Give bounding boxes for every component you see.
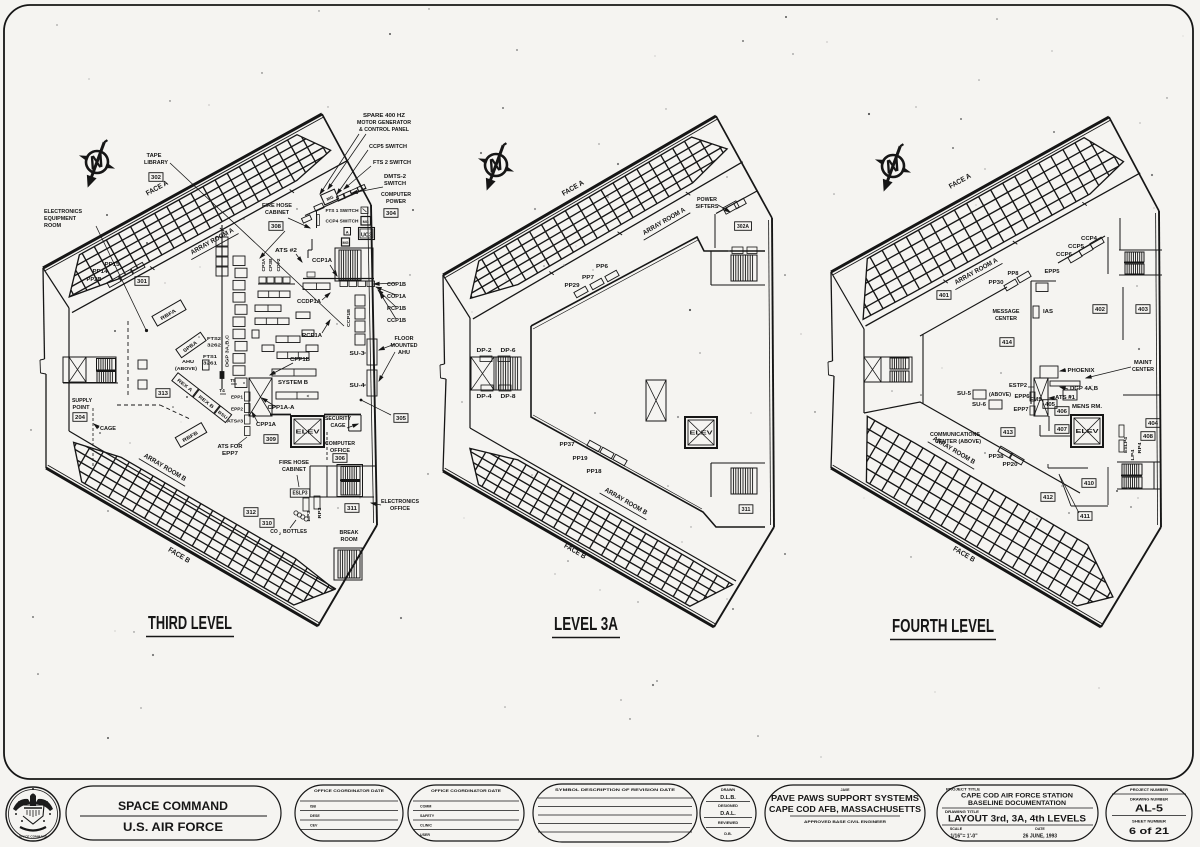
svg-text:311: 311 [742, 507, 751, 513]
svg-text:PROJECT NUMBER: PROJECT NUMBER [1130, 788, 1168, 792]
svg-text:SCALE: SCALE [950, 827, 963, 831]
svg-text:310: 310 [262, 521, 272, 527]
svg-text:MAINT: MAINT [1134, 360, 1153, 366]
svg-text:1/16"= 1'-0": 1/16"= 1'-0" [950, 834, 978, 840]
svg-text:SUPPLY: SUPPLY [72, 398, 93, 404]
svg-text:BASELINE DOCUMENTATION: BASELINE DOCUMENTATION [968, 800, 1066, 807]
svg-text:ROOM: ROOM [341, 537, 358, 543]
svg-text:PP38: PP38 [989, 454, 1004, 460]
svg-text:FLOOR: FLOOR [395, 336, 414, 342]
svg-text:DRAWING NUMBER: DRAWING NUMBER [1130, 798, 1168, 802]
svg-text:ELEV: ELEV [296, 430, 321, 436]
svg-text:DRAWN: DRAWN [721, 788, 736, 792]
svg-text:COP1A: COP1A [387, 294, 406, 300]
svg-text:SPACE COMMAND: SPACE COMMAND [19, 835, 47, 839]
svg-text:SHEET NUMBER: SHEET NUMBER [1132, 820, 1166, 824]
svg-text:PP7: PP7 [582, 275, 594, 281]
svg-text:DP-6: DP-6 [501, 348, 516, 354]
svg-text:COMPUTER: COMPUTER [325, 441, 355, 447]
svg-text:407: 407 [1057, 427, 1067, 433]
svg-text:402: 402 [1095, 307, 1105, 313]
svg-text:REVIEWED: REVIEWED [718, 821, 739, 825]
svg-text:CP3B: CP3B [268, 259, 273, 272]
svg-text:COMPUTER: COMPUTER [381, 192, 411, 198]
svg-text:D.B.: D.B. [724, 832, 732, 836]
svg-text:FTS 2 SWITCH: FTS 2 SWITCH [373, 160, 411, 166]
svg-text:FTS1: FTS1 [203, 354, 217, 360]
svg-text:CPP1A-A: CPP1A-A [268, 405, 295, 411]
svg-text:CENTER: CENTER [1132, 367, 1154, 373]
svg-text:CPP1A: CPP1A [256, 422, 276, 428]
svg-text:LIBRARY: LIBRARY [144, 160, 169, 166]
svg-text:CENTER: CENTER [995, 316, 1017, 322]
svg-text:<: < [307, 394, 310, 399]
svg-text:JA0E: JA0E [841, 788, 851, 792]
svg-text:311: 311 [347, 506, 357, 512]
svg-text:EPP2: EPP2 [231, 407, 243, 413]
svg-text:LP4: LP4 [1130, 449, 1135, 461]
svg-text:LEVEL 3A: LEVEL 3A [554, 614, 618, 634]
svg-text:PP14: PP14 [93, 269, 108, 275]
svg-text:306: 306 [335, 456, 345, 462]
svg-text:SU-3: SU-3 [350, 351, 365, 357]
svg-text:MG: MG [363, 220, 369, 224]
svg-text:204: 204 [75, 415, 85, 421]
svg-text:PHOENIX: PHOENIX [1068, 368, 1096, 374]
svg-text:ATS FOR: ATS FOR [218, 444, 243, 450]
svg-text:PP29: PP29 [565, 283, 580, 289]
svg-text:ELEV: ELEV [1076, 429, 1100, 435]
svg-text:SU-4: SU-4 [350, 383, 365, 389]
svg-text:MESSAGE: MESSAGE [993, 309, 1021, 315]
svg-text:401: 401 [939, 293, 949, 299]
svg-text:312: 312 [246, 510, 256, 516]
svg-text:FOURTH LEVEL: FOURTH LEVEL [892, 616, 994, 636]
svg-text:OFFICE: OFFICE [390, 506, 411, 512]
svg-text:CP3A: CP3A [261, 258, 266, 272]
svg-text:PP6: PP6 [596, 264, 608, 270]
svg-text:309: 309 [266, 437, 276, 443]
svg-text:FIRE HOSE: FIRE HOSE [262, 203, 293, 209]
svg-text:SYSTEM B: SYSTEM B [278, 380, 308, 386]
svg-text:T4: T4 [219, 388, 225, 394]
svg-text:POWER: POWER [386, 199, 406, 205]
svg-text:SIFTERS: SIFTERS [696, 204, 720, 210]
svg-text:DESE: DESE [310, 814, 320, 818]
svg-text:PROJECT TITLE: PROJECT TITLE [946, 788, 981, 792]
svg-text:313: 313 [158, 391, 168, 397]
svg-text:DGP 3A,B,C: DGP 3A,B,C [225, 334, 231, 367]
svg-text:SYMBOL DESCRIPTION OF REVI: SYMBOL DESCRIPTION OF REVISION DATE [555, 788, 676, 792]
svg-text:410: 410 [1084, 481, 1094, 487]
svg-text:26 JUNE, 1993: 26 JUNE, 1993 [1023, 834, 1057, 840]
svg-text:DP-8: DP-8 [501, 394, 516, 400]
svg-text:SU-5: SU-5 [957, 391, 971, 397]
svg-text:CABINET: CABINET [282, 467, 306, 473]
svg-text:OFFICE: OFFICE [330, 448, 351, 454]
svg-text:CEV: CEV [310, 824, 318, 828]
svg-text:CPP1B: CPP1B [290, 357, 310, 363]
svg-text:CAGE: CAGE [331, 423, 347, 429]
svg-text:PP15: PP15 [105, 262, 120, 268]
svg-text:304: 304 [386, 211, 396, 217]
svg-text:EPP7: EPP7 [222, 451, 238, 457]
svg-text:FTS 1 SWITCH: FTS 1 SWITCH [326, 208, 360, 213]
svg-text:EPP1: EPP1 [231, 395, 243, 401]
svg-text:COP1B: COP1B [387, 282, 406, 288]
svg-text:T5: T5 [230, 378, 236, 384]
svg-text:CCP4 SWITCH: CCP4 SWITCH [326, 219, 360, 224]
svg-text:PP20: PP20 [1003, 462, 1018, 468]
svg-text:(ABOVE): (ABOVE) [989, 392, 1011, 398]
svg-text:OFFICE COORDINATOR DATE: OFFICE COORDINATOR DATE [314, 789, 385, 793]
svg-text:A: A [346, 230, 349, 235]
svg-text:CAPE COD AIR FORCE STATION: CAPE COD AIR FORCE STATION [961, 793, 1073, 800]
svg-text:PP30: PP30 [989, 280, 1004, 286]
svg-text:FTS2: FTS2 [207, 336, 221, 342]
svg-text:TAPE: TAPE [147, 153, 163, 159]
svg-text:MG: MG [342, 241, 348, 245]
svg-text:ESTP2: ESTP2 [1009, 383, 1027, 389]
svg-text:CCP6: CCP6 [1056, 252, 1072, 258]
svg-text:AL-5: AL-5 [1135, 803, 1163, 815]
svg-text:COMMUNICATIONS: COMMUNICATIONS [930, 432, 981, 438]
svg-text:PAVE PAWS SUPPORT SYSTEMS: PAVE PAWS SUPPORT SYSTEMS [771, 793, 919, 803]
svg-text:DMTS-2: DMTS-2 [384, 174, 406, 180]
svg-text:403: 403 [1138, 307, 1148, 313]
svg-text:MOTOR GENERATOR: MOTOR GENERATOR [357, 120, 411, 126]
svg-text:408: 408 [1143, 434, 1153, 440]
svg-text:3262: 3262 [207, 343, 221, 349]
svg-text:ROOM: ROOM [44, 223, 61, 229]
svg-text:DESIGNED: DESIGNED [718, 804, 738, 808]
svg-text:& CONTROL PANEL: & CONTROL PANEL [359, 127, 410, 133]
svg-text:U.S. AIR FORCE: U.S. AIR FORCE [123, 822, 223, 834]
svg-text:CDP2: CDP2 [276, 258, 281, 272]
svg-text:IAS: IAS [1043, 309, 1054, 315]
svg-text:PP2B: PP2B [87, 277, 102, 283]
svg-text:COMM: COMM [420, 805, 431, 809]
svg-text:CCP1B: CCP1B [346, 308, 351, 327]
svg-text:CCP1A: CCP1A [312, 258, 332, 264]
svg-text:EPP6: EPP6 [1015, 394, 1030, 400]
svg-text:414: 414 [1002, 340, 1012, 346]
svg-text:ELECTRONICS: ELECTRONICS [381, 499, 420, 505]
svg-text:2: 2 [279, 532, 281, 536]
svg-text:PP37: PP37 [560, 442, 575, 448]
svg-text:CO: CO [270, 529, 278, 535]
svg-text:PP18: PP18 [587, 469, 602, 475]
svg-text:305: 305 [396, 416, 406, 422]
svg-text:CCDP1A: CCDP1A [297, 299, 321, 305]
svg-text:LAYOUT 3rd, 3A, 4th LEVELS: LAYOUT 3rd, 3A, 4th LEVELS [948, 814, 1086, 824]
svg-text:SECURITY: SECURITY [325, 416, 352, 422]
svg-text:EPP7: EPP7 [1014, 407, 1029, 413]
svg-text:ATS #1: ATS #1 [1055, 395, 1075, 401]
svg-text:PP8: PP8 [1008, 271, 1019, 277]
svg-text:CCP5 SWITCH: CCP5 SWITCH [369, 144, 407, 150]
svg-text:ATS #2: ATS #2 [275, 248, 297, 254]
svg-text:ESLP3: ESLP3 [293, 491, 308, 497]
svg-text:CABINET: CABINET [265, 210, 289, 216]
svg-text:CCP1B: CCP1B [387, 318, 406, 324]
svg-text:ELECTRONICS: ELECTRONICS [44, 209, 83, 215]
svg-text:D.A.L.: D.A.L. [720, 811, 736, 817]
svg-text:EPP5: EPP5 [1045, 269, 1060, 275]
svg-text:PP19: PP19 [573, 456, 588, 462]
svg-text:UC3: UC3 [361, 233, 372, 239]
svg-text:406: 406 [1057, 409, 1067, 415]
svg-text:OFFICE COORDINATOR DATE: OFFICE COORDINATOR DATE [431, 789, 502, 793]
svg-text:412: 412 [1043, 495, 1053, 501]
svg-text:THIRD LEVEL: THIRD LEVEL [148, 613, 232, 633]
svg-text:3261: 3261 [203, 361, 217, 367]
svg-text:411: 411 [1080, 514, 1090, 520]
svg-text:AHU: AHU [182, 359, 195, 365]
svg-text:6 of 21: 6 of 21 [1129, 826, 1169, 836]
svg-text:RCP1A: RCP1A [302, 333, 322, 339]
svg-text:CAGE: CAGE [100, 426, 117, 432]
svg-text:POWER: POWER [697, 197, 717, 203]
svg-text:CAPE COD AFB, MASSACHUSETTS: CAPE COD AFB, MASSACHUSETTS [769, 804, 921, 814]
svg-text:(ABOVE): (ABOVE) [175, 366, 197, 372]
svg-text:USER: USER [420, 833, 430, 837]
svg-text:405: 405 [1045, 402, 1055, 408]
svg-text:LP3: LP3 [306, 510, 311, 522]
svg-text:ISB: ISB [310, 805, 316, 809]
svg-text:CENTER (ABOVE): CENTER (ABOVE) [935, 439, 981, 445]
svg-text:DGP 4A,B: DGP 4A,B [1070, 386, 1098, 392]
svg-text:BOTTLES: BOTTLES [283, 529, 308, 535]
svg-text:ELEV: ELEV [690, 431, 714, 437]
svg-text:AHU: AHU [398, 350, 410, 356]
svg-text:SWITCH: SWITCH [384, 181, 406, 187]
svg-text:302: 302 [151, 175, 161, 181]
svg-text:SPARE 400 HZ: SPARE 400 HZ [363, 113, 406, 119]
svg-text:DP-4: DP-4 [477, 394, 492, 400]
svg-text:DATE: DATE [1035, 827, 1045, 831]
svg-text:SPACE COMMAND: SPACE COMMAND [118, 799, 228, 813]
svg-text:SU-6: SU-6 [972, 402, 986, 408]
svg-text:CLINIC: CLINIC [420, 824, 432, 828]
svg-text:302A: 302A [737, 224, 749, 230]
svg-text:D.L.B.: D.L.B. [720, 795, 736, 801]
svg-text:FIRE HOSE: FIRE HOSE [279, 460, 310, 466]
svg-text:ATS#3: ATS#3 [227, 419, 243, 425]
svg-text:POINT: POINT [73, 405, 91, 411]
svg-text:APPROVED BASE CIVIL ENGINEE: APPROVED BASE CIVIL ENGINEER [804, 819, 886, 824]
svg-text:308: 308 [271, 224, 281, 230]
svg-text:RP4: RP4 [1137, 442, 1142, 454]
svg-text:413: 413 [1003, 430, 1013, 436]
svg-text:BREAK: BREAK [340, 530, 359, 536]
svg-text:DP-2: DP-2 [477, 348, 492, 354]
svg-text:MENS RM.: MENS RM. [1072, 404, 1103, 410]
svg-text:301: 301 [137, 279, 147, 285]
svg-text:SAFETY: SAFETY [420, 814, 435, 818]
svg-text:EQUIPMENT: EQUIPMENT [44, 216, 77, 222]
svg-text:404: 404 [1148, 421, 1158, 427]
